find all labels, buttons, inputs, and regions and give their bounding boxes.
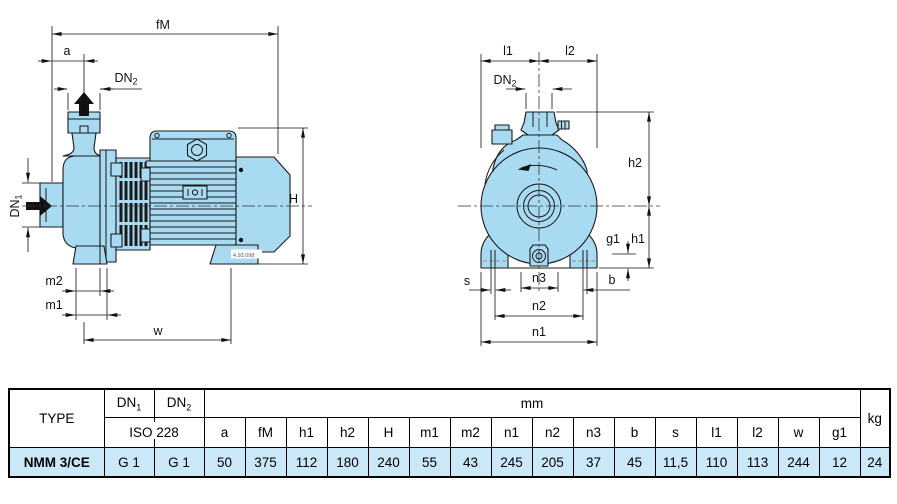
pump-side-view: 4.93.098 (8, 18, 312, 344)
cell-l2: 113 (737, 448, 778, 478)
cell-h2: 180 (327, 448, 368, 478)
pump-front-view: l1 l2 DN2 h2 h1 g1 s n3 b n2 n1 (458, 44, 660, 346)
dim-label-n1: n1 (532, 325, 546, 339)
col-header-l2: l2 (737, 418, 778, 448)
col-header-s: s (655, 418, 696, 448)
col-header-iso: ISO 228 (104, 418, 204, 448)
cell-type: NMM 3/CE (9, 448, 104, 478)
pump-foot (73, 246, 107, 264)
dim-label-h1: h1 (631, 232, 645, 246)
cell-m1: 55 (409, 448, 450, 478)
discharge-port-front (521, 112, 559, 135)
col-header-n1: n1 (491, 418, 532, 448)
drawing-number: 4.93.098 (233, 253, 254, 259)
dim-label-n2: n2 (532, 299, 546, 313)
dim-label-h2: h2 (628, 156, 642, 170)
col-header-h1: h1 (286, 418, 327, 448)
cable-gland-icon (188, 139, 207, 161)
fan-cover (236, 157, 290, 252)
col-header-h: H (368, 418, 409, 448)
cell-s: 11,5 (655, 448, 696, 478)
col-header-mm: mm (204, 389, 860, 418)
col-header-fm: fM (245, 418, 286, 448)
dim-label-g1: g1 (606, 232, 620, 246)
cell-g1: 12 (819, 448, 860, 478)
col-header-l1: l1 (696, 418, 737, 448)
dimensional-drawing: 4.93.098 (0, 0, 897, 384)
discharge-pipe (63, 133, 101, 156)
dim-label-s: s (464, 274, 470, 288)
cell-n1: 245 (491, 448, 532, 478)
dim-label-w: w (152, 324, 163, 338)
cell-kg: 24 (860, 448, 890, 478)
col-header-type: TYPE (9, 389, 104, 448)
col-header-n3: n3 (573, 418, 614, 448)
col-header-b: b (614, 418, 655, 448)
dim-label-dn1: DN1 (8, 194, 24, 217)
dim-label-l1: l1 (503, 44, 513, 58)
col-header-kg: kg (860, 389, 890, 448)
col-header-dn1: DN1 (104, 389, 154, 418)
cell-n3: 37 (573, 448, 614, 478)
cell-l1: 110 (696, 448, 737, 478)
catalog-dimensions-page: 4.93.098 (0, 0, 897, 504)
dim-label-m2: m2 (45, 274, 62, 288)
col-header-n2: n2 (532, 418, 573, 448)
col-header-g1: g1 (819, 418, 860, 448)
cell-m2: 43 (450, 448, 491, 478)
dim-label-b: b (609, 273, 616, 287)
dim-label-h-total: H (289, 192, 298, 206)
nameplate (183, 186, 207, 199)
cell-h1: 112 (286, 448, 327, 478)
col-header-h2: h2 (327, 418, 368, 448)
dim-label-m1: m1 (45, 298, 62, 312)
dim-label-n3: n3 (532, 271, 546, 285)
dim-label-dn2-side: DN2 (114, 71, 137, 87)
dimensions-table-wrap: TYPE DN1 DN2 mm kg ISO 228 a fM h1 h2 H … (8, 388, 891, 478)
cell-h: 240 (368, 448, 409, 478)
dim-label-fm: fM (156, 18, 170, 32)
col-header-m2: m2 (450, 418, 491, 448)
cell-a: 50 (204, 448, 245, 478)
cell-w: 244 (778, 448, 819, 478)
dim-label-l2: l2 (565, 44, 575, 58)
col-header-m1: m1 (409, 418, 450, 448)
col-header-dn2: DN2 (154, 389, 204, 418)
pump-casing (63, 156, 100, 248)
dim-label-dn2-front: DN2 (493, 73, 516, 89)
cell-dn1: G 1 (104, 448, 154, 478)
dimensions-table: TYPE DN1 DN2 mm kg ISO 228 a fM h1 h2 H … (8, 388, 891, 478)
table-row: NMM 3/CE G 1 G 1 50 375 112 180 240 55 4… (9, 448, 890, 478)
col-header-w: w (778, 418, 819, 448)
cell-fm: 375 (245, 448, 286, 478)
cell-b: 45 (614, 448, 655, 478)
priming-plug (492, 130, 512, 144)
dim-label-a: a (64, 44, 71, 58)
col-header-a: a (204, 418, 245, 448)
cell-dn2: G 1 (154, 448, 204, 478)
cell-n2: 205 (532, 448, 573, 478)
